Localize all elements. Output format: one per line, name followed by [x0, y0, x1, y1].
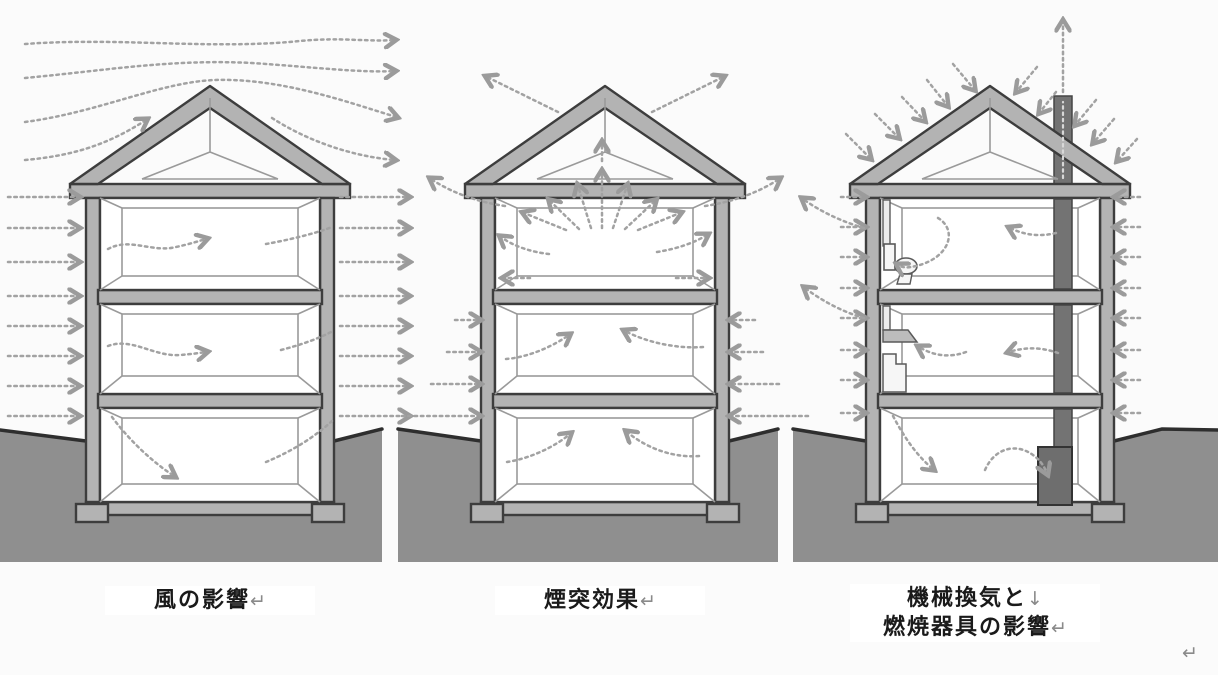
exhaust-outlet-arrows — [803, 199, 864, 318]
return-mark: ↵ — [640, 590, 656, 612]
caption-text: 機械換気と — [907, 585, 1027, 610]
stack-effect-panel — [398, 77, 808, 562]
roof-infiltration-arrows — [846, 64, 1137, 160]
caption-mechanical: 機械換気と↓ 燃焼器具の影響↵ — [850, 584, 1100, 642]
caption-line-1: 機械換気と↓ — [850, 584, 1100, 613]
trailing-return-mark: ↵ — [1182, 642, 1198, 664]
house-cross-section — [70, 86, 350, 522]
caption-text: 燃焼器具の影響 — [883, 614, 1051, 639]
chimney — [1054, 199, 1072, 448]
wind-inflow-arrows — [8, 197, 78, 416]
wall-infiltration-arrows-right — [1116, 197, 1140, 413]
mechanical-panel — [793, 22, 1218, 562]
house-cross-section — [850, 86, 1130, 522]
combustion-appliance — [1038, 447, 1072, 505]
caption-line-2: 燃焼器具の影響↵ — [850, 613, 1100, 642]
return-mark: ↵ — [250, 590, 266, 612]
caption-wind: 風の影響↵ — [105, 586, 315, 615]
caption-text: 煙突効果 — [544, 587, 640, 612]
stack-inflow-arrows-right — [731, 320, 808, 416]
return-mark: ↵ — [1051, 617, 1067, 639]
stack-inflow-arrows-left — [402, 320, 479, 416]
caption-stack-effect: 煙突効果↵ — [495, 586, 705, 615]
house-cross-section — [465, 86, 745, 522]
wind-outflow-arrows — [340, 197, 408, 416]
wind-panel — [0, 39, 408, 562]
caption-text: 風の影響 — [154, 587, 250, 612]
ventilation-diagram — [0, 0, 1218, 675]
line-break-mark: ↓ — [1027, 588, 1043, 610]
wall-infiltration-arrows-left — [841, 197, 864, 413]
